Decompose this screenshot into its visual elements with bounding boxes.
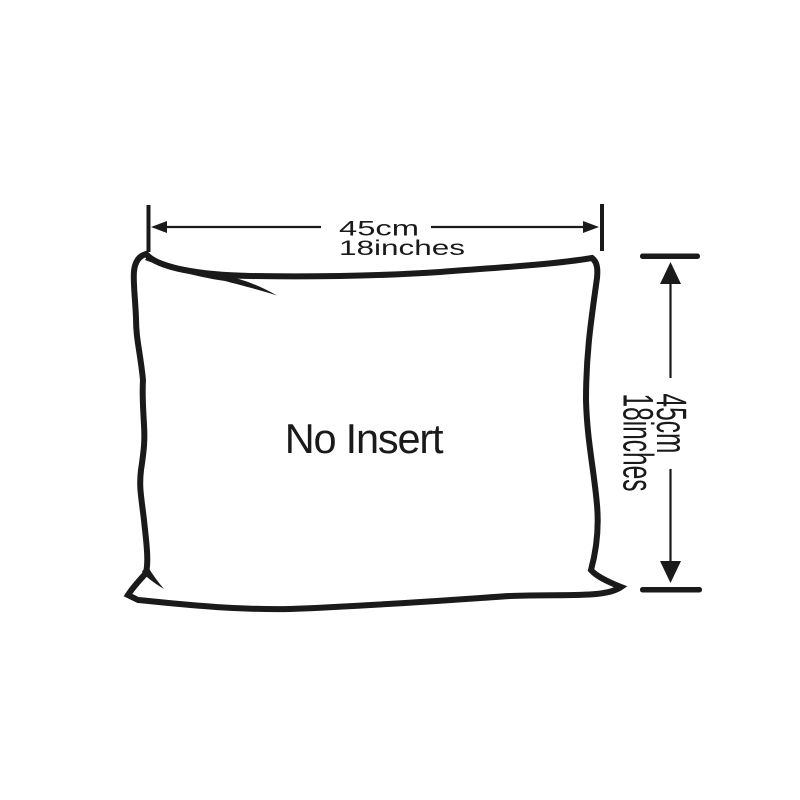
svg-text:No Insert: No Insert [285,415,444,462]
svg-text:18inches: 18inches [339,236,465,260]
